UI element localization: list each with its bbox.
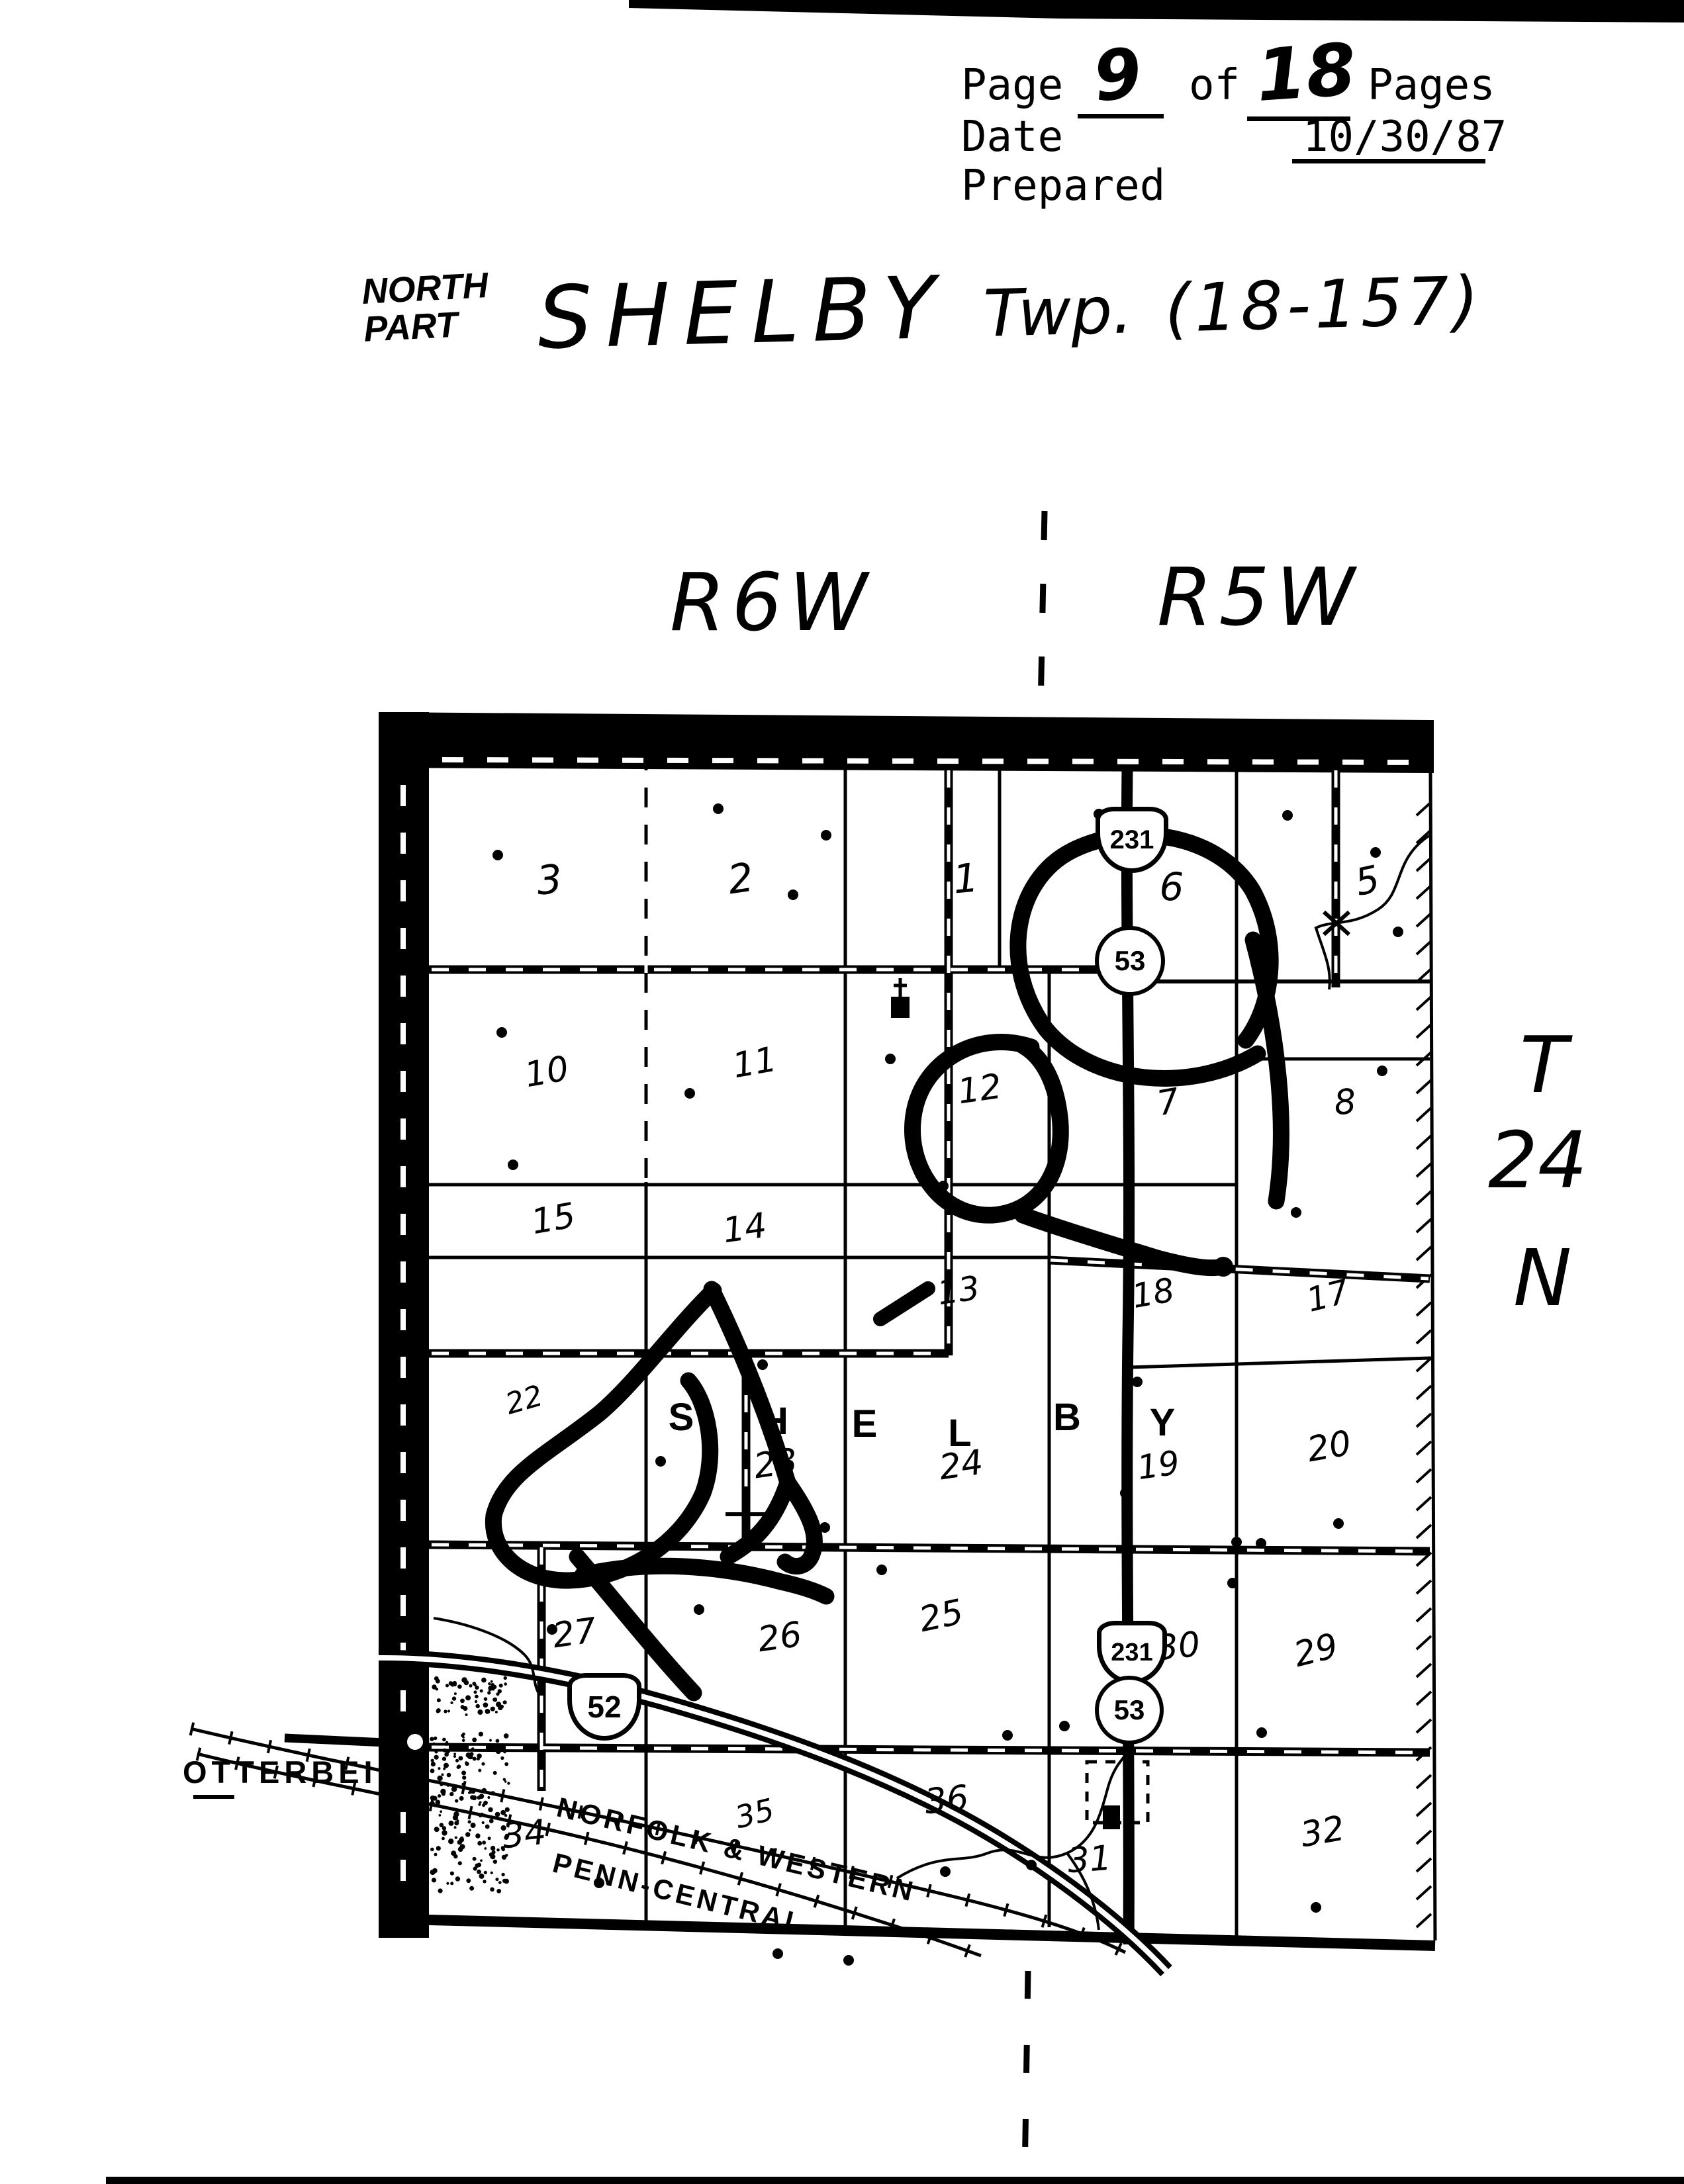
section-number: 1 <box>951 858 980 899</box>
section-number: 11 <box>730 1042 779 1084</box>
section-number: 14 <box>721 1208 769 1249</box>
section-number: 20 <box>1305 1426 1354 1468</box>
section-number: 25 <box>916 1595 966 1638</box>
section-number: 5 <box>1352 861 1383 902</box>
township-spelled-letter: S <box>669 1398 694 1437</box>
section-number: 7 <box>1154 1084 1182 1122</box>
section-number: 10 <box>522 1052 571 1093</box>
section-number: 12 <box>956 1069 1004 1110</box>
highway-shield-52: 52 <box>567 1673 641 1741</box>
highway-shield-label: 52 <box>587 1689 621 1725</box>
section-number: 34 <box>500 1815 547 1854</box>
section-number: 32 <box>1298 1811 1347 1853</box>
section-number: 26 <box>756 1617 804 1658</box>
section-number: 3 <box>535 859 563 901</box>
section-number: 22 <box>502 1381 546 1420</box>
section-number: 31 <box>1066 1841 1113 1878</box>
highway-shield-231: 231 <box>1096 807 1168 873</box>
highway-shield-label: 53 <box>1115 945 1146 977</box>
highway-shield-53: 53 <box>1095 926 1165 996</box>
section-number: 13 <box>935 1271 982 1310</box>
section-number: 27 <box>551 1614 599 1654</box>
township-spelled-letter: E <box>852 1405 878 1443</box>
section-number: 19 <box>1135 1446 1182 1484</box>
highway-shield-label: 231 <box>1111 1639 1152 1667</box>
section-number: 2 <box>725 858 756 901</box>
map-labels-layer: 3216510111278151413181722232419202726253… <box>0 0 1684 2184</box>
section-number: 15 <box>529 1199 578 1240</box>
section-number: 8 <box>1333 1085 1358 1121</box>
section-number: 36 <box>923 1781 970 1820</box>
township-spelled-letter: L <box>948 1414 971 1453</box>
highway-shield-label: 231 <box>1110 825 1154 855</box>
section-number: 18 <box>1129 1273 1176 1313</box>
highway-shield-53: 53 <box>1095 1676 1164 1745</box>
section-number: 35 <box>732 1794 777 1833</box>
township-spelled-letter: B <box>1053 1398 1081 1437</box>
highway-shield-label: 53 <box>1114 1694 1145 1726</box>
highway-shield-231: 231 <box>1097 1621 1167 1684</box>
township-spelled-letter: H <box>761 1402 788 1441</box>
section-number: 23 <box>752 1444 800 1484</box>
scanned-plat-page: Page 9 of 18 Pages Date Prepared 10/30/8… <box>0 0 1684 2184</box>
township-spelled-letter: Y <box>1150 1404 1176 1442</box>
section-number: 6 <box>1160 868 1184 906</box>
section-number: 29 <box>1291 1629 1342 1672</box>
section-number: 17 <box>1303 1275 1352 1317</box>
